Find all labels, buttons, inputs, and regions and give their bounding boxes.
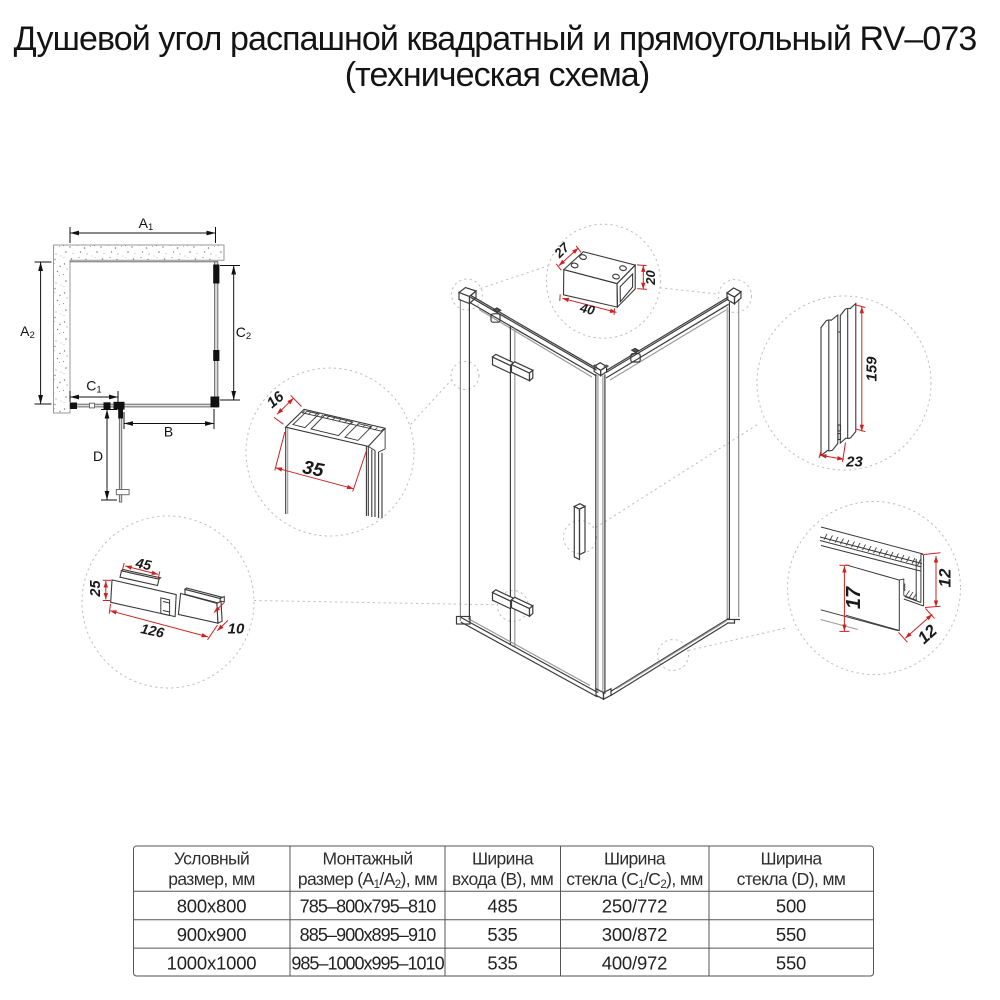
svg-text:D: D bbox=[93, 448, 103, 464]
svg-text:Ширина: Ширина bbox=[760, 849, 822, 869]
svg-text:985–1000x995–1010: 985–1000x995–1010 bbox=[291, 954, 444, 974]
svg-text:485: 485 bbox=[487, 896, 517, 917]
svg-text:25: 25 bbox=[88, 580, 104, 598]
svg-text:(техническая схема): (техническая схема) bbox=[345, 56, 650, 94]
svg-text:400/972: 400/972 bbox=[602, 953, 667, 974]
svg-text:250/772: 250/772 bbox=[602, 896, 667, 917]
svg-text:550: 550 bbox=[776, 924, 806, 945]
svg-text:45: 45 bbox=[133, 554, 153, 573]
svg-text:885–900x895–910: 885–900x895–910 bbox=[300, 925, 437, 945]
svg-text:159: 159 bbox=[864, 356, 881, 382]
svg-text:Условный: Условный bbox=[174, 849, 249, 869]
svg-text:35: 35 bbox=[301, 457, 326, 482]
svg-text:10: 10 bbox=[228, 621, 245, 638]
svg-text:500: 500 bbox=[776, 896, 806, 917]
svg-text:900x900: 900x900 bbox=[177, 924, 247, 945]
svg-text:Ширина: Ширина bbox=[604, 849, 666, 869]
svg-text:23: 23 bbox=[845, 454, 863, 471]
svg-text:785–800x795–810: 785–800x795–810 bbox=[300, 897, 437, 917]
svg-text:размер (А1/А2), мм: размер (А1/А2), мм bbox=[298, 869, 437, 891]
svg-text:17: 17 bbox=[843, 586, 865, 609]
svg-text:Душевой угол распашной квадрат: Душевой угол распашной квадратный и прям… bbox=[14, 20, 977, 58]
svg-text:1000x1000: 1000x1000 bbox=[167, 953, 257, 974]
svg-text:20: 20 bbox=[643, 270, 658, 286]
svg-text:550: 550 bbox=[776, 953, 806, 974]
svg-text:B: B bbox=[164, 424, 173, 440]
svg-text:размер, мм: размер, мм bbox=[168, 869, 255, 889]
svg-text:стекла (С1/С2), мм: стекла (С1/С2), мм bbox=[566, 869, 703, 891]
svg-text:535: 535 bbox=[487, 953, 517, 974]
svg-text:стекла (D), мм: стекла (D), мм bbox=[737, 869, 846, 889]
svg-text:800x800: 800x800 bbox=[177, 896, 247, 917]
svg-text:Монтажный: Монтажный bbox=[322, 849, 412, 869]
svg-text:300/872: 300/872 bbox=[602, 924, 667, 945]
svg-text:12: 12 bbox=[936, 568, 955, 587]
svg-text:Ширина: Ширина bbox=[472, 849, 534, 869]
svg-text:535: 535 bbox=[487, 924, 517, 945]
svg-text:входа (В), мм: входа (В), мм bbox=[452, 869, 553, 889]
